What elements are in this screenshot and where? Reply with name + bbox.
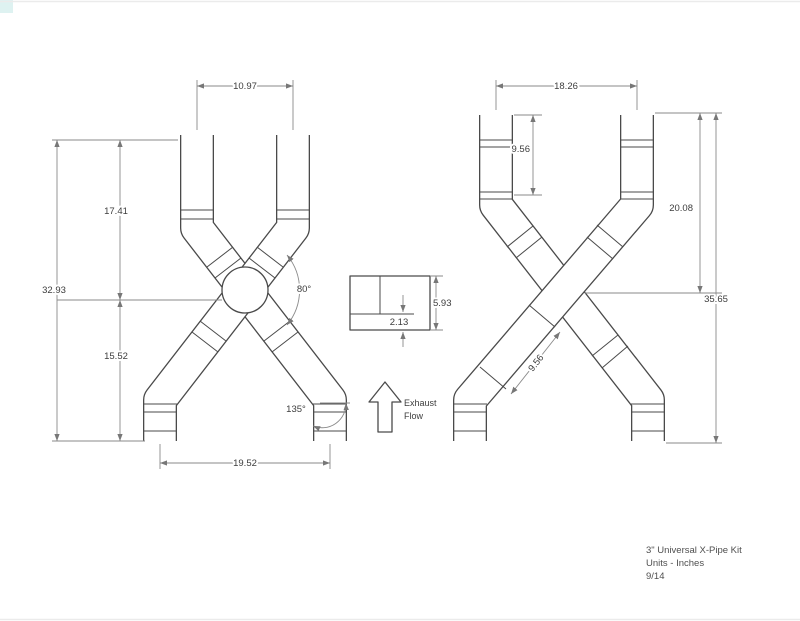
up-arrow-icon xyxy=(369,382,401,432)
exhaust-flow-indicator: Exhaust Flow xyxy=(369,382,437,432)
dim-left-top-width: 10.97 xyxy=(197,80,293,130)
label-lower-height-left: 15.52 xyxy=(104,351,128,362)
dim-left-bottom-width: 19.52 xyxy=(160,444,330,469)
title-units: Units - Inches xyxy=(646,558,704,569)
dim-left-upper-height: 17.41 xyxy=(104,140,128,300)
technical-drawing: 10.97 32.93 17.41 15.52 19.52 xyxy=(0,0,800,621)
flow-label-line1: Exhaust xyxy=(404,398,437,408)
title-block: 3" Universal X-Pipe Kit Units - Inches 9… xyxy=(646,545,742,582)
label-detail-overall: 5.93 xyxy=(433,298,452,309)
drawing-page: 10.97 32.93 17.41 15.52 19.52 xyxy=(0,0,800,621)
label-bend-angle: 135° xyxy=(286,404,306,415)
flow-label-line2: Flow xyxy=(404,411,424,421)
label-upper-height-right: 20.08 xyxy=(669,203,693,214)
label-top-width-right: 18.26 xyxy=(554,81,578,92)
right-xpipe-figure xyxy=(453,115,665,441)
dim-right-top-width: 18.26 xyxy=(496,80,637,110)
merge-collector xyxy=(222,267,268,313)
dim-detail-overall: 5.93 xyxy=(430,276,452,330)
label-overall-height-left: 32.93 xyxy=(42,285,66,296)
label-bottom-width-left: 19.52 xyxy=(233,458,257,469)
dim-merge-angle: 80° xyxy=(287,255,311,325)
title-product: 3" Universal X-Pipe Kit xyxy=(646,545,742,556)
dim-right-inlet-length: 9.56 xyxy=(512,115,543,195)
title-revision: 9/14 xyxy=(646,571,665,582)
label-upper-height-left: 17.41 xyxy=(104,206,128,217)
label-top-width-left: 10.97 xyxy=(233,81,257,92)
label-detail-offset: 2.13 xyxy=(390,317,409,328)
dim-right-overall-height: 35.65 xyxy=(666,113,728,443)
left-xpipe-figure xyxy=(143,135,347,441)
label-merge-angle: 80° xyxy=(297,284,312,295)
label-overall-height-right: 35.65 xyxy=(704,294,728,305)
detail-section-view: 5.93 2.13 xyxy=(350,276,452,347)
label-inlet-length: 9.56 xyxy=(512,144,531,155)
